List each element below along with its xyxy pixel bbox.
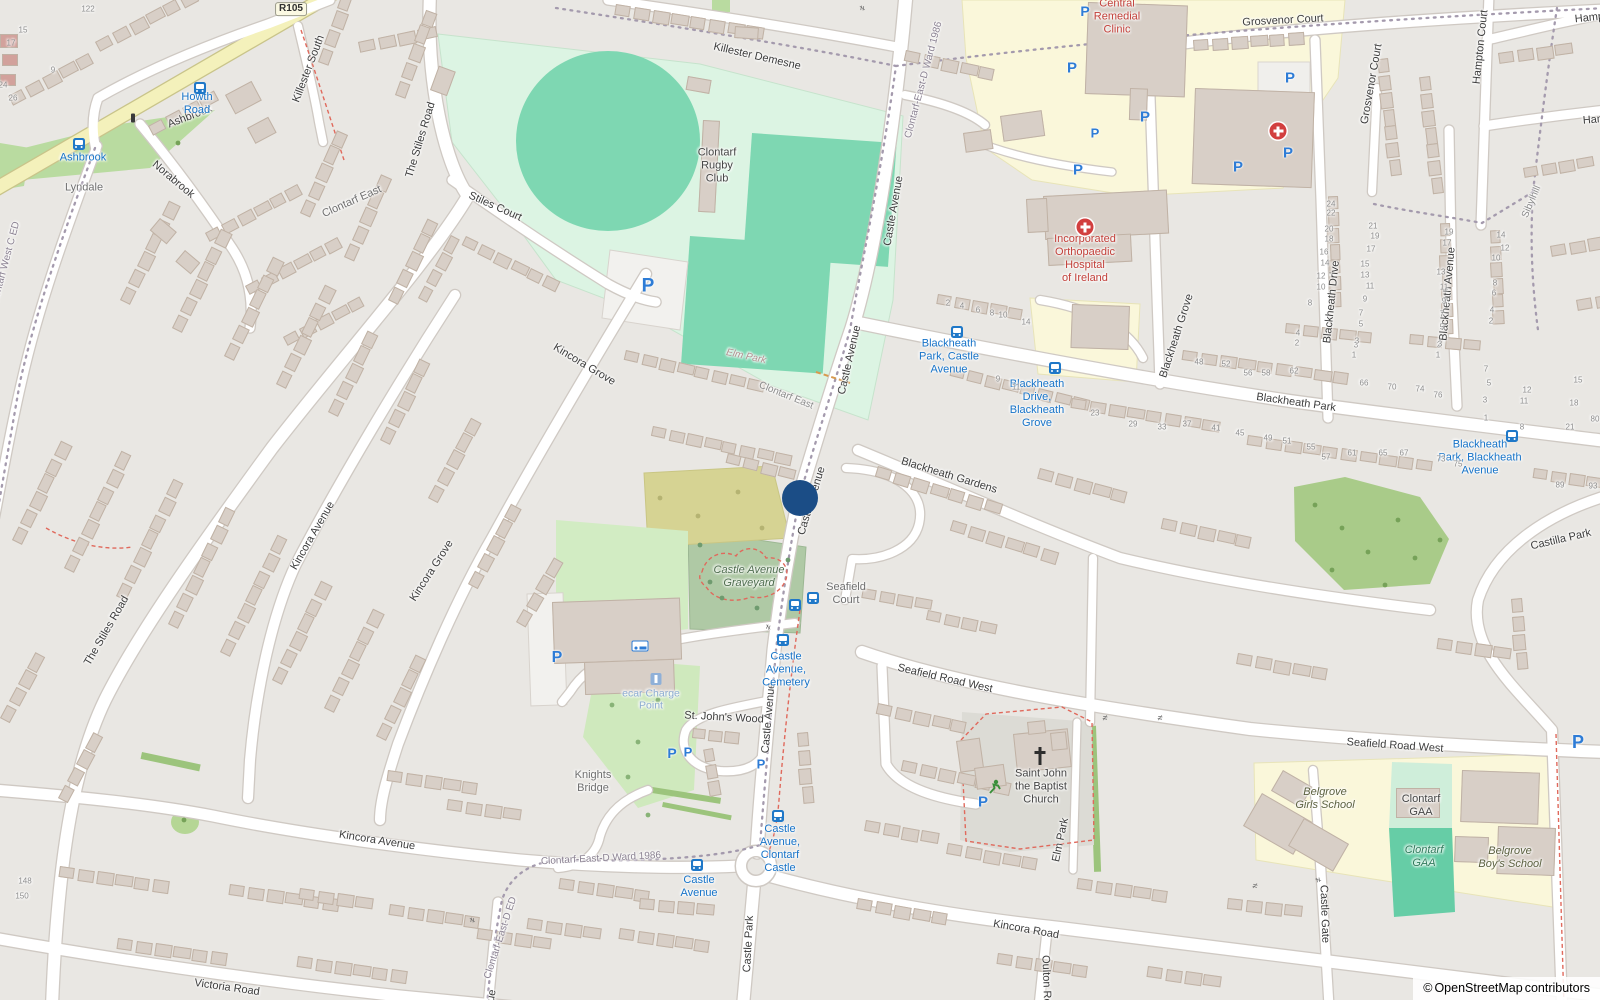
bus-stop-icon [691,859,703,871]
icons-layer: PPPPPPPPPPPPPPP [0,0,1600,1000]
parking-icon: P [1073,163,1083,178]
parking-icon: P [1091,127,1100,140]
openstreetmap-link[interactable]: OpenStreetMap [1434,981,1522,995]
traffic-light-icon [131,114,135,123]
parking-icon: P [1233,160,1243,175]
parking-icon: P [552,650,563,666]
map-canvas[interactable]: R105AshbrookNorabrookKillester SouthThe … [0,0,1600,1000]
parking-icon: P [1285,71,1295,86]
bus-stop-icon [951,326,963,338]
parking-icon: P [1080,4,1089,18]
bus-stop-icon [789,599,801,611]
bus-stop-icon [1506,430,1518,442]
parking-icon: P [1283,146,1293,161]
parking-icon: P [757,758,766,771]
parking-icon: P [642,277,655,296]
bus-stop-icon [194,82,206,94]
attribution-copyright: © [1423,981,1432,995]
hospital-cross-icon [1270,123,1287,140]
parking-icon: P [1572,733,1584,751]
attribution-bar: ©OpenStreetMapcontributors [1413,977,1600,1000]
current-location-dot [782,480,818,516]
bus-stop-icon [807,592,819,604]
bus-stop-icon [777,634,789,646]
attribution-suffix: contributors [1525,981,1590,995]
hotel-bed-icon [632,641,649,652]
church-cross-icon [1034,747,1047,765]
parking-icon: P [684,746,693,759]
parking-icon: P [1140,110,1150,125]
bus-stop-icon [772,810,784,822]
bus-stop-icon [73,138,85,150]
hospital-cross-icon [1077,219,1094,236]
parking-icon: P [667,746,676,760]
bus-stop-icon [1049,362,1061,374]
ev-charge-icon [651,673,662,685]
parking-icon: P [978,795,988,810]
parking-icon: P [1067,61,1077,76]
